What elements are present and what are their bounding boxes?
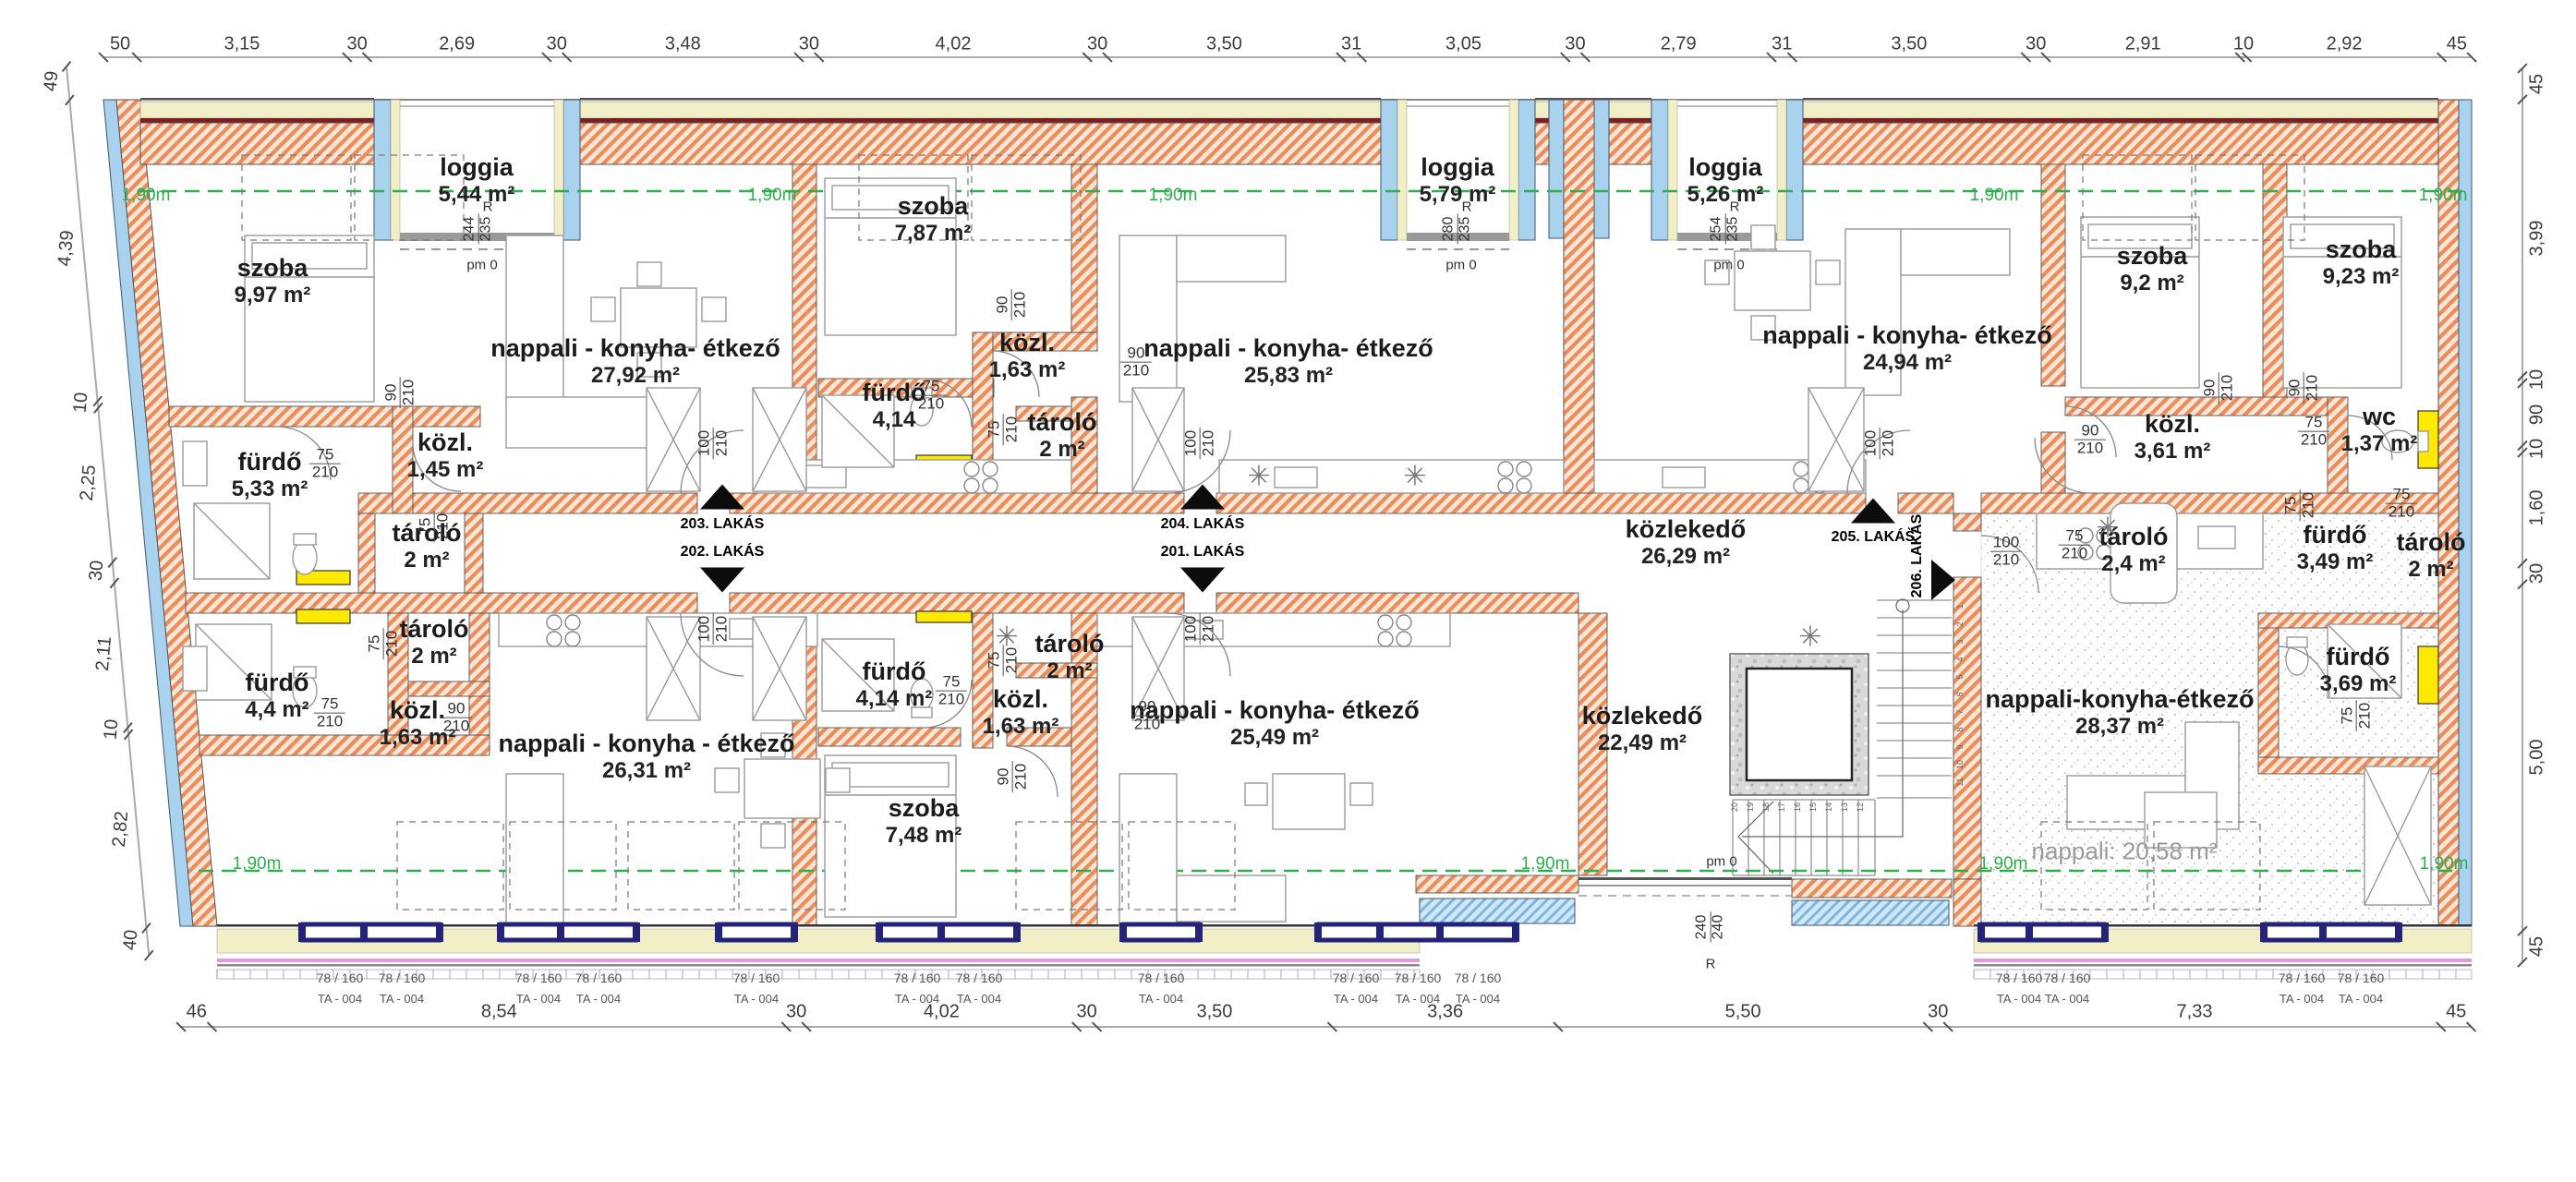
room-label: loggia5,26 m² xyxy=(1687,153,1764,209)
apartment-arrow-right-icon xyxy=(1931,560,1955,600)
height-label: 1,90m xyxy=(1970,186,2019,206)
door-dimension: 75210 xyxy=(2298,415,2329,449)
window-tag: 78 / 160TA - 004 xyxy=(575,971,623,1005)
room-label: fürdő4,14 m² xyxy=(856,657,933,713)
stair-number: 13 xyxy=(1840,802,1849,812)
room-label: nappali: 20,58 m² xyxy=(2032,838,2218,866)
dimension-top: 30 xyxy=(1565,34,1585,55)
dimension-top: 3,05 xyxy=(1445,34,1482,55)
window-pm-label: pm 0 xyxy=(466,258,497,273)
room-label: loggia5,79 m² xyxy=(1420,153,1496,209)
dimension-right: 10 xyxy=(2527,439,2548,459)
stair-number: 19 xyxy=(1746,802,1755,812)
elevator-cab xyxy=(1747,669,1852,780)
pillar-insulation xyxy=(1594,100,1609,238)
dimension-bottom: 7,33 xyxy=(2177,1002,2213,1023)
room-label: nappali - konyha - étkező26,31 m² xyxy=(498,730,794,785)
door-dimension: 75210 xyxy=(2283,489,2317,521)
stair-number: 8 xyxy=(1955,727,1965,731)
room-label: közlekedő26,29 m² xyxy=(1626,515,1747,571)
stair-number: 12 xyxy=(1856,802,1865,812)
dimension-left: 49 xyxy=(40,70,63,92)
stair-number: 6 xyxy=(1955,692,1965,696)
dimension-left: 2,82 xyxy=(109,811,133,849)
dimension-left: 4,39 xyxy=(54,230,79,268)
dimension-top: 3,48 xyxy=(665,34,701,55)
door-dimension: 75210 xyxy=(417,511,452,542)
vent-symbol: ✳ xyxy=(995,621,1018,654)
door-dimension: 75210 xyxy=(915,379,947,413)
window-tag: 78 / 160TA - 004 xyxy=(1333,971,1380,1005)
height-label: 1,90m xyxy=(1149,186,1198,206)
pillar-insulation xyxy=(1549,100,1564,238)
window-pm-label: pm 0 xyxy=(1706,854,1736,870)
stair-number: 11 xyxy=(1955,778,1965,786)
stair-number: 15 xyxy=(1808,802,1818,812)
dimension-right: 1,60 xyxy=(2527,490,2548,526)
dimension-left: 2,11 xyxy=(92,635,116,671)
room-label: szoba9,2 m² xyxy=(2117,242,2188,297)
dimension-right: 3,99 xyxy=(2527,220,2548,256)
room-label: tároló2 m² xyxy=(2396,528,2465,584)
apartment-label: 205. LAKÁS xyxy=(1832,529,1916,546)
window-r-label: R xyxy=(1706,957,1716,972)
window-tag: 78 / 160TA - 004 xyxy=(1138,971,1185,1005)
window-dimension: 280235 xyxy=(1442,214,1474,245)
window-tag: 78 / 160TA - 004 xyxy=(515,971,562,1005)
dimension-right: 45 xyxy=(2527,74,2548,94)
room-label: fürdő5,33 m² xyxy=(232,448,308,503)
dimension-top: 30 xyxy=(799,34,819,55)
room-label: közl.1,63 m² xyxy=(983,685,1059,741)
dimension-top: 2,79 xyxy=(1661,34,1697,55)
door-dimension: 90210 xyxy=(1131,699,1163,733)
height-label: 1,90m xyxy=(233,854,282,874)
room-label: közl.1,45 m² xyxy=(407,428,484,484)
height-label: 1,90m xyxy=(122,186,171,206)
stair-number: 5 xyxy=(1955,674,1965,679)
window-pm-label: pm 0 xyxy=(1713,258,1744,273)
room-label: szoba7,48 m² xyxy=(886,794,962,850)
door-dimension: 90210 xyxy=(2287,372,2321,404)
stair-number: 3 xyxy=(1955,639,1965,644)
door-dimension: 100210 xyxy=(1863,428,1897,459)
door-dimension: 90210 xyxy=(383,377,417,408)
apartment-label: 204. LAKÁS xyxy=(1161,516,1245,533)
window-tag: 78 / 160TA - 004 xyxy=(2279,971,2326,1005)
dimension-left: 30 xyxy=(85,560,108,582)
room-label: közl.1,63 m² xyxy=(989,329,1066,384)
dimension-bottom: 5,50 xyxy=(1725,1002,1761,1023)
room-label: tároló2 m² xyxy=(1027,408,1096,464)
stair-number: 18 xyxy=(1761,802,1771,812)
dimension-top: 4,02 xyxy=(936,34,972,55)
apartment-arrow-up-icon xyxy=(1851,499,1895,524)
window-r-label: R xyxy=(1462,199,1472,215)
dimension-top: 2,69 xyxy=(439,34,475,55)
dimension-left: 10 xyxy=(100,718,123,741)
dimension-bottom: 3,50 xyxy=(1196,1002,1232,1023)
room-label: loggia5,44 m² xyxy=(439,153,515,209)
dimension-bottom: 4,02 xyxy=(924,1002,960,1023)
door-dimension: 75210 xyxy=(986,414,1021,445)
dimension-top: 3,50 xyxy=(1891,34,1927,55)
room-label: wc1,37 m² xyxy=(2341,403,2418,458)
dimension-left: 10 xyxy=(70,392,93,414)
dimension-top: 30 xyxy=(547,34,567,55)
apartment-arrow-up-icon xyxy=(700,485,744,510)
door-dimension: 75210 xyxy=(314,696,345,730)
dimension-right: 45 xyxy=(2527,936,2548,957)
dimension-right: 90 xyxy=(2527,404,2548,425)
dimension-top: 3,50 xyxy=(1206,34,1242,55)
room-label: nappali - konyha- étkező25,49 m² xyxy=(1130,696,1420,752)
stair-number: 17 xyxy=(1777,802,1786,812)
door-dimension: 90210 xyxy=(2074,423,2106,457)
dimension-right: 10 xyxy=(2527,369,2548,390)
right-wall-insulation xyxy=(2459,100,2472,926)
room-label: szoba9,97 m² xyxy=(235,254,311,309)
door-dimension: 75210 xyxy=(309,447,341,481)
dimension-bottom: 3,36 xyxy=(1427,1002,1463,1023)
dimension-right: 30 xyxy=(2527,563,2548,584)
vent-symbol: ✳ xyxy=(2096,513,2119,545)
window-r-label: R xyxy=(1730,199,1740,215)
dimension-top: 31 xyxy=(1772,34,1792,55)
door-dimension: 75210 xyxy=(2059,528,2090,562)
vent-symbol: ✳ xyxy=(1798,621,1821,654)
room-label: szoba7,87 m² xyxy=(895,192,972,247)
dimension-top: 2,91 xyxy=(2125,34,2161,55)
door-dimension: 75210 xyxy=(2386,487,2417,521)
window-tag: 78 / 160TA - 004 xyxy=(317,971,364,1005)
room-label: nappali - konyha- étkező25,83 m² xyxy=(1143,334,1433,390)
room-label: tároló2 m² xyxy=(1034,630,1104,685)
room-label: fürdő4,4 m² xyxy=(245,669,308,724)
room-label: fürdő3,49 m² xyxy=(2297,521,2374,576)
window-tag: 78 / 160TA - 004 xyxy=(733,971,780,1005)
apartment-label: 203. LAKÁS xyxy=(681,516,765,533)
door-dimension: 90210 xyxy=(1120,345,1152,380)
dimension-top: 30 xyxy=(347,34,368,55)
door-dimension: 75210 xyxy=(936,674,967,708)
stair-number: 10 xyxy=(1955,760,1965,769)
window-dimension: 244235 xyxy=(463,214,495,245)
dimension-right: 5,00 xyxy=(2527,740,2548,776)
room-label: nappali - konyha- étkező24,94 m² xyxy=(1762,321,2052,377)
room-label: tároló2 m² xyxy=(399,615,468,670)
dimension-bottom: 46 xyxy=(187,1002,207,1023)
room-label: nappali - konyha- étkező27,92 m² xyxy=(490,334,780,390)
dimension-bottom: 30 xyxy=(786,1002,806,1023)
room-label: közlekedő22,49 m² xyxy=(1582,702,1703,757)
door-dimension: 100210 xyxy=(696,428,731,459)
stair-number: 16 xyxy=(1793,802,1802,812)
stair-number: 20 xyxy=(1730,802,1739,812)
dimension-bottom: 8,54 xyxy=(481,1002,517,1023)
furniture xyxy=(183,178,2431,926)
right-wall xyxy=(2438,100,2459,926)
window-dimension: 254235 xyxy=(1710,214,1742,245)
height-label: 1,90m xyxy=(1521,854,1570,874)
door-dimension: 90210 xyxy=(2202,372,2236,404)
window-tag: 78 / 160TA - 004 xyxy=(379,971,426,1005)
door-dimension: 100210 xyxy=(1183,613,1217,645)
window-tag: 78 / 160TA - 004 xyxy=(956,971,1003,1005)
door-dimension: 75210 xyxy=(2340,700,2374,731)
window-r-label: R xyxy=(483,199,493,215)
height-label: 1,90m xyxy=(748,186,797,206)
dimension-top: 30 xyxy=(1087,34,1107,55)
height-label: 1,90m xyxy=(1979,854,2028,874)
stair-number: 9 xyxy=(1955,744,1965,749)
door-dimension: 100210 xyxy=(696,613,731,645)
door-dimension: 90210 xyxy=(995,289,1029,320)
door-dimension: 75210 xyxy=(367,628,401,659)
dimension-top: 10 xyxy=(2233,34,2254,55)
dimension-top: 45 xyxy=(2447,34,2467,55)
stair-number: 7 xyxy=(1955,709,1965,714)
dimension-bottom: 45 xyxy=(2446,1002,2466,1023)
dimension-left: 40 xyxy=(119,929,142,951)
apartment-label: 201. LAKÁS xyxy=(1161,544,1245,561)
stair-number: 1 xyxy=(1955,604,1965,609)
dimension-top: 50 xyxy=(110,34,130,55)
dimension-top: 31 xyxy=(1341,34,1361,55)
window-tag: 78 / 160TA - 004 xyxy=(1455,971,1502,1005)
dimension-top: 2,92 xyxy=(2327,34,2363,55)
dimension-bottom: 30 xyxy=(1076,1002,1096,1023)
window-tag: 78 / 160TA - 004 xyxy=(894,971,941,1005)
height-label: 1,90m xyxy=(2420,854,2469,874)
dimension-top: 3,15 xyxy=(224,34,260,55)
door-dimension: 100210 xyxy=(1990,535,2022,569)
dimension-left: 2,25 xyxy=(77,464,101,502)
central-pillar-wall xyxy=(1564,100,1594,493)
vent-symbol: ✳ xyxy=(1247,461,1270,493)
stair-number: 4 xyxy=(1955,657,1965,661)
window-tag: 78 / 160TA - 004 xyxy=(2338,971,2385,1005)
dimension-top: 30 xyxy=(2026,34,2046,55)
door-dimension: 90210 xyxy=(996,761,1030,792)
apartment-arrow-up-icon xyxy=(1180,485,1225,510)
dimension-bottom: 30 xyxy=(1928,1002,1948,1023)
apartment-arrow-down-icon xyxy=(1180,568,1225,593)
window-tag: 78 / 160TA - 004 xyxy=(2044,971,2091,1005)
window-tag: 78 / 160TA - 004 xyxy=(1996,971,2043,1005)
stair-number: 2 xyxy=(1955,621,1965,626)
apartment-label: 202. LAKÁS xyxy=(681,544,765,561)
stair-number: 14 xyxy=(1824,802,1833,812)
door-dimension: 90210 xyxy=(441,701,472,735)
room-label: fürdő3,69 m² xyxy=(2320,643,2397,698)
window-pm-label: pm 0 xyxy=(1445,258,1476,273)
room-label: nappali-konyha-étkező28,37 m² xyxy=(1985,685,2254,741)
vent-symbol: ✳ xyxy=(1403,461,1426,493)
apartment-label: 206. LAKÁS xyxy=(1909,514,1926,598)
room-label: közl.3,61 m² xyxy=(2135,410,2211,465)
apartment-arrow-down-icon xyxy=(700,568,744,593)
stair-core xyxy=(1730,599,1952,875)
window-dimension: 240240 xyxy=(1695,912,1727,943)
floor-plan: loggia5,44 m²szoba9,97 m²nappali - konyh… xyxy=(0,0,2576,1182)
window-tag: 78 / 160TA - 004 xyxy=(1395,971,1442,1005)
door-dimension: 100210 xyxy=(1183,428,1217,459)
room-label: szoba9,23 m² xyxy=(2323,235,2400,291)
height-label: 1,90m xyxy=(2419,186,2468,206)
